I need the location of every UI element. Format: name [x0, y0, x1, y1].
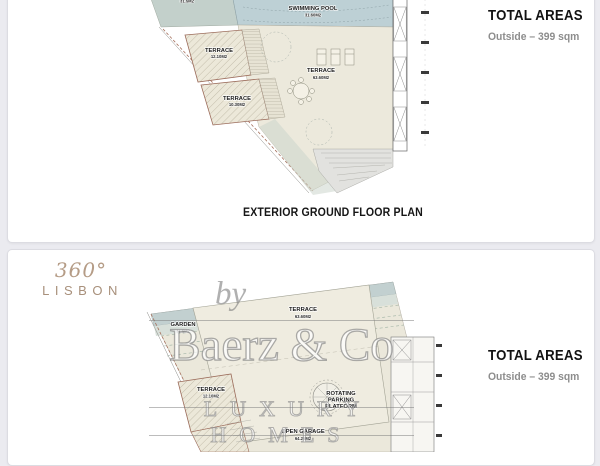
- rotating-parking-label-2: PARKING: [328, 398, 355, 404]
- rotating-parking-label-3: PLATFORM: [325, 404, 357, 410]
- gallery-image-watermarked-plan[interactable]: 360° LISBON: [7, 249, 595, 466]
- total-areas-title: TOTAL AREAS: [488, 7, 585, 24]
- logo-lisbon-text: LISBON: [36, 283, 126, 298]
- terrace-main-label: TERRACE: [307, 68, 335, 74]
- terrace-upper-area-label: 12.10M2: [211, 54, 228, 59]
- total-areas-outside: Outside – 399 sqm: [488, 371, 591, 383]
- garden-area-label: 31.5M2: [176, 329, 191, 334]
- terrace-main-area-label: 63.60M2: [313, 75, 330, 80]
- terrace-main-area-label: 63.60M2: [295, 314, 312, 319]
- terrace-left-area-label: 12.10M2: [203, 394, 220, 399]
- total-areas-block-bottom: TOTAL AREAS Outside – 399 sqm: [488, 347, 598, 383]
- swimming-pool-area-label: 31.60M2: [305, 13, 322, 18]
- gallery-image-exterior-plan[interactable]: SWIMMING POOL 31.60M2 GARDEN 31.5M2 TERR…: [7, 0, 595, 243]
- open-garage-label: OPEN GARAGE: [281, 429, 325, 435]
- plan-title: EXTERIOR GROUND FLOOR PLAN: [170, 205, 496, 219]
- building-wall: [393, 0, 407, 151]
- terrace-main-label: TERRACE: [289, 307, 317, 313]
- garden-band: [151, 0, 238, 27]
- garden-cut-area-label: 31.5M2: [180, 0, 195, 4]
- total-areas-block-top: TOTAL AREAS Outside – 399 sqm: [488, 7, 598, 43]
- garden-label: GARDEN: [170, 322, 195, 328]
- terrace-left-label: TERRACE: [197, 387, 225, 393]
- terrace-lower-area-label: 10.30M2: [229, 102, 246, 107]
- floor-plan-drawing-bottom: GARDEN 31.5M2 TERRACE 63.60M2 TERRACE 12…: [131, 274, 461, 452]
- swimming-pool-label: SWIMMING POOL: [289, 6, 338, 12]
- total-areas-title: TOTAL AREAS: [488, 347, 585, 364]
- rotating-parking-label-1: ROTATING: [326, 391, 356, 397]
- open-garage-area-label: 64.25M2: [295, 436, 312, 441]
- garage-rooms-block: [391, 337, 442, 452]
- floor-plan-drawing-top: SWIMMING POOL 31.60M2 GARDEN 31.5M2 TERR…: [141, 0, 441, 197]
- total-areas-outside: Outside – 399 sqm: [488, 31, 591, 43]
- logo-360-text: 360°: [36, 258, 126, 282]
- sun-loungers: [317, 49, 354, 65]
- agency-logo-360-lisbon: 360° LISBON: [36, 258, 126, 298]
